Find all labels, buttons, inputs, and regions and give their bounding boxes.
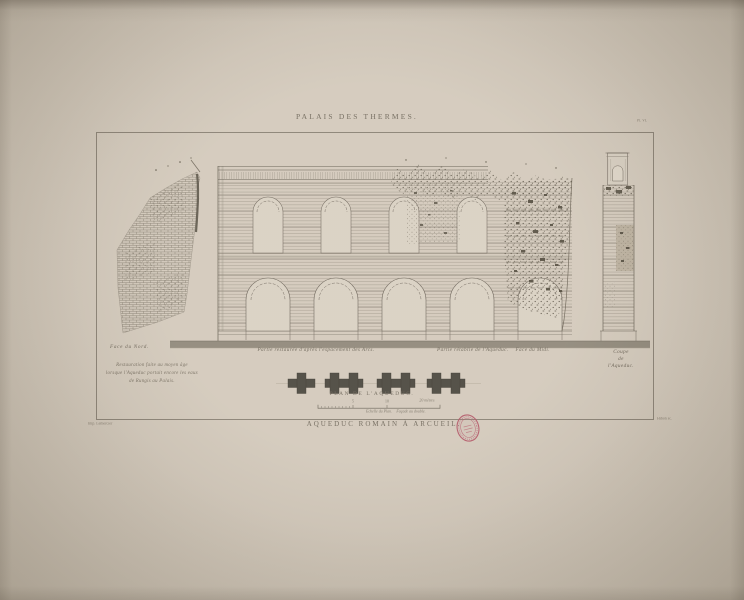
caption-partie-retablie-row: Partie rétablie de l'Aqueduc. Face du Mi…	[437, 348, 550, 353]
caption-face-du-midi: Face du Midi.	[515, 348, 549, 353]
caption-partie-retablie: Partie rétablie de l'Aqueduc.	[437, 348, 508, 353]
restoration-note-line2: lorsque l'Aqueduc portait encore les eau…	[106, 372, 198, 377]
scale-end-label: 20 mètres	[419, 399, 434, 403]
scale-caption-left: Echelle du Plan.	[366, 410, 392, 414]
credit-right: Hibon sc.	[657, 417, 672, 421]
scale-tick-10: 10	[385, 400, 389, 404]
caption-coupe-line3: l'Aqueduc.	[608, 364, 634, 369]
photographed-plate: PALAIS DES THERMES. Pl. VI. Face du Nord…	[0, 0, 744, 600]
caption-coupe-line1: Coupe	[613, 350, 629, 355]
caption-partie-restauree: Partie restaurée d'après l'espacement de…	[257, 348, 374, 353]
plan-title: PLAN DE L'AQUEDUC.	[330, 392, 415, 397]
scale-tick-5: 5	[352, 400, 354, 404]
scale-caption-right: Façade au double.	[396, 410, 425, 414]
plate-border	[96, 132, 654, 420]
restoration-note-line1: Restauration faite au moyen âge	[116, 364, 188, 369]
collection-stamp-icon	[453, 411, 483, 445]
restoration-note-line3: de Rungis au Palais.	[129, 380, 175, 385]
plate-number: Pl. VI.	[637, 119, 647, 123]
series-title: PALAIS DES THERMES.	[296, 113, 418, 121]
bottom-title: AQUEDUC ROMAIN À ARCUEIL.	[307, 421, 462, 428]
caption-face-du-nord: Face du Nord.	[110, 345, 149, 350]
caption-coupe-line2: de	[618, 357, 624, 362]
credit-left: Imp. Lemercier	[88, 422, 112, 426]
